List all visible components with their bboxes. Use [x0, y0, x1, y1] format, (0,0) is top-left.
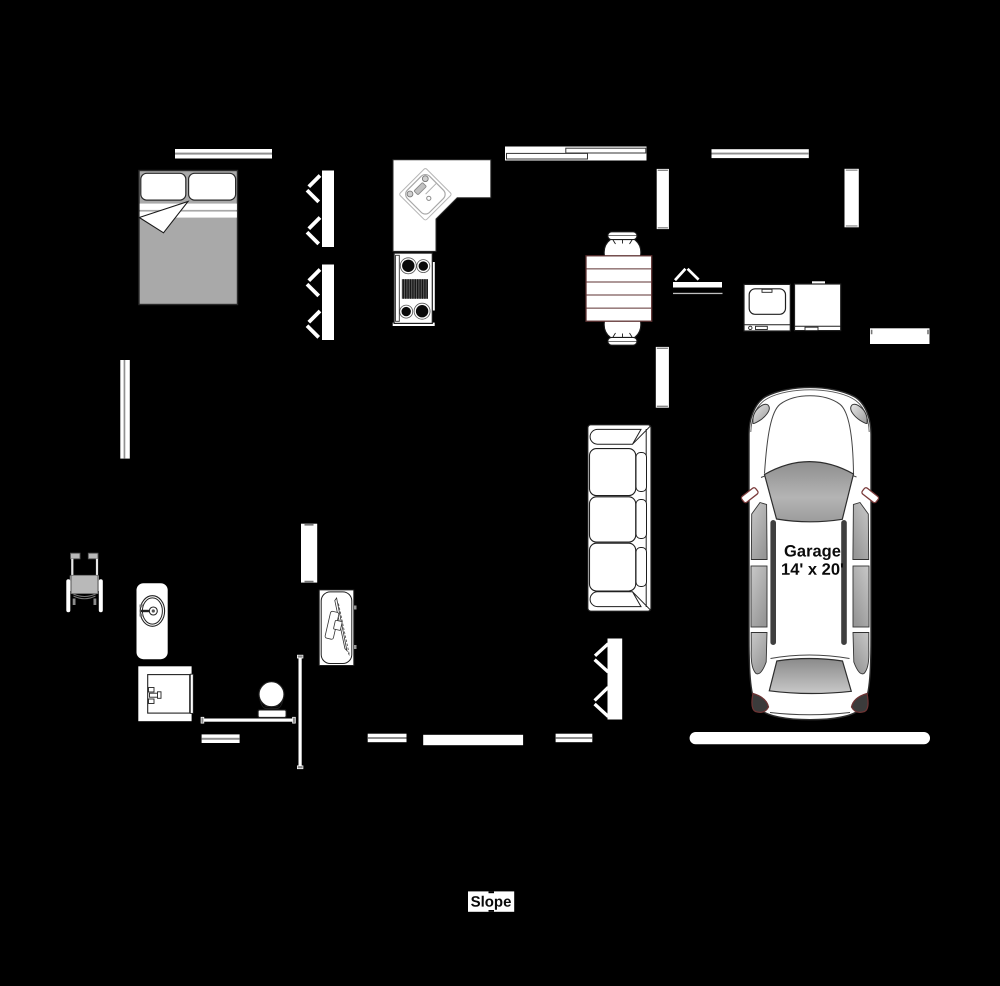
svg-text:14' x 20': 14' x 20' — [781, 561, 844, 579]
svg-text:Slope: Slope — [471, 894, 512, 911]
svg-text:Garage: Garage — [784, 542, 841, 560]
